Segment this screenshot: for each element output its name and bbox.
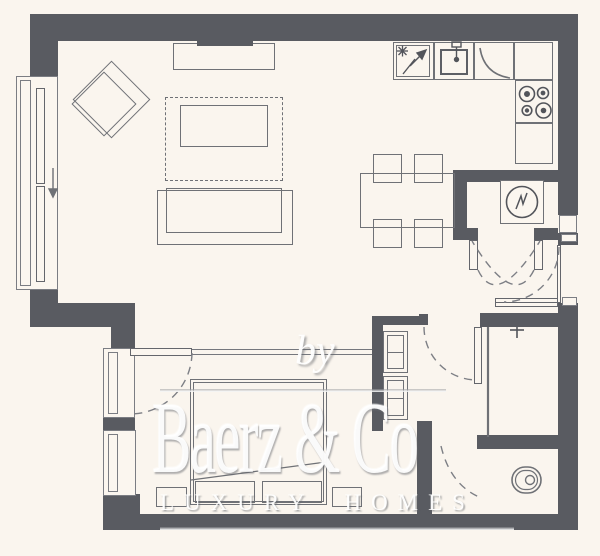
pillow-left — [195, 481, 255, 503]
wardrobe-unit-2 — [383, 376, 408, 420]
wall-left-upper-pier — [30, 38, 58, 80]
fridge-inner — [396, 45, 430, 77]
floor-plan: by Baerz & Co LUXURY HOMES — [0, 0, 600, 556]
bedroom-door-leaf — [130, 348, 192, 356]
east-door-leaf — [557, 245, 561, 303]
east-door-jamb-lower — [562, 297, 577, 306]
shower-head-icon — [510, 327, 524, 338]
bathroom-door-swing-arc — [441, 446, 479, 497]
toilet-icon — [512, 467, 541, 493]
wardrobe-unit-1 — [383, 331, 408, 373]
hall-wall-left — [372, 316, 383, 431]
boiler-cabinet — [500, 180, 544, 224]
coffee-table — [180, 105, 268, 147]
wall-step-horizontal — [30, 303, 135, 327]
closet-wall-bottom-right — [534, 228, 558, 240]
radiator — [495, 298, 558, 307]
bedroom-window-2-pane — [108, 434, 118, 492]
bathroom-wall-top — [480, 313, 558, 327]
dining-table — [360, 173, 455, 228]
counter-divider-3 — [513, 42, 515, 80]
hall-door-swing-arc — [424, 327, 477, 380]
east-door-jamb-mid — [561, 234, 577, 242]
sink-basin — [440, 49, 468, 75]
living-window-fixed-pane — [20, 80, 31, 286]
sofa-seat — [166, 188, 282, 233]
wall-bedroom-window-pier — [103, 418, 135, 430]
counter-divider-1 — [433, 42, 435, 80]
nightstand-left — [156, 487, 187, 507]
wall-bottom — [105, 514, 578, 530]
hall-door-hinge-post — [419, 314, 428, 325]
counter-divider-2 — [473, 42, 475, 80]
bedroom-window-1-pane — [108, 352, 118, 414]
closet-door-swing-arc-right — [472, 241, 534, 285]
closet-door-leaf-right — [534, 240, 543, 270]
east-door-jamb-upper — [559, 215, 577, 233]
shower-wall-bottom — [477, 435, 558, 449]
sideboard — [173, 43, 275, 70]
wall-bedroom-corner — [103, 494, 140, 530]
bedroom-door-swing-arc — [130, 353, 192, 414]
closet-door-swing-arc-left — [478, 241, 540, 285]
tv — [197, 41, 253, 46]
east-door-swing-arc — [504, 247, 559, 302]
pillow-right — [262, 481, 322, 503]
living-window-slider-upper — [36, 88, 45, 184]
hall-wall-right-lower — [417, 421, 432, 515]
closet-wall-bottom-left — [453, 228, 478, 240]
hall-door-leaf — [474, 327, 482, 384]
counter-divider-4 — [515, 122, 553, 124]
wall-right-upper — [558, 41, 578, 215]
wall-right-lower — [558, 303, 578, 530]
nightstand-right — [332, 487, 362, 507]
living-window-slider-lower — [36, 186, 45, 282]
wall-top — [30, 14, 578, 41]
closet-door-leaf-left — [469, 240, 478, 270]
